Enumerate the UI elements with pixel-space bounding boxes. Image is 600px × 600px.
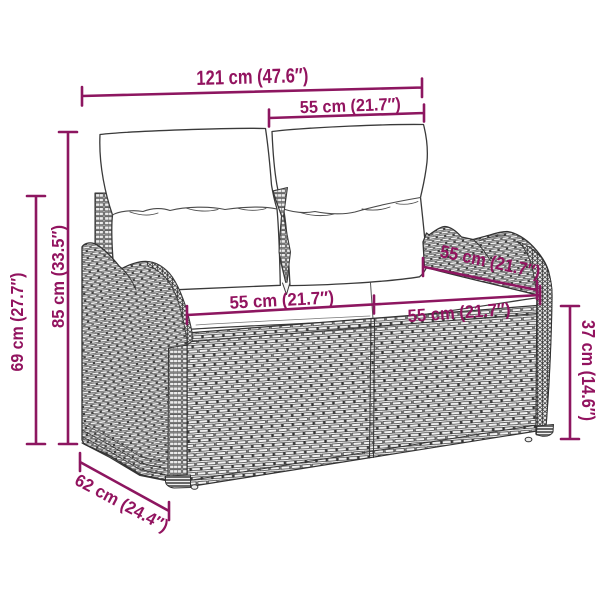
svg-text:121 cm (47.6″): 121 cm (47.6″) xyxy=(196,64,309,90)
svg-text:55 cm (21.7″): 55 cm (21.7″) xyxy=(299,94,401,118)
svg-text:69 cm (27.7″): 69 cm (27.7″) xyxy=(7,273,27,372)
svg-text:85 cm (33.5″): 85 cm (33.5″) xyxy=(48,225,68,328)
svg-text:37 cm (14.6″): 37 cm (14.6″) xyxy=(578,320,598,421)
